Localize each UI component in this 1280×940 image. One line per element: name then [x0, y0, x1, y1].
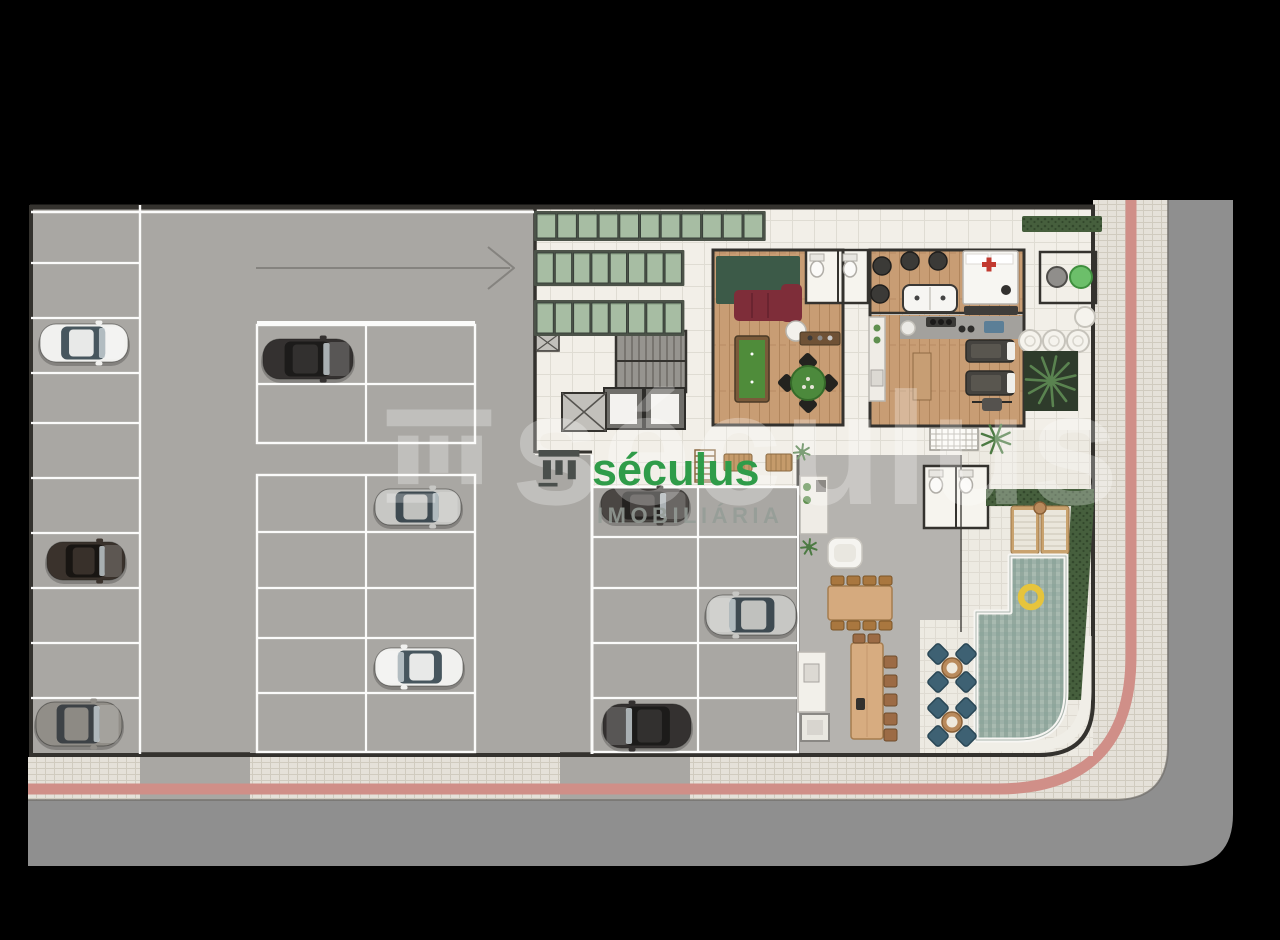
toilet — [960, 477, 973, 493]
elevator-1-cab — [610, 394, 637, 424]
treadmill-console — [1007, 373, 1015, 393]
puck — [915, 296, 920, 301]
counter-item — [808, 336, 813, 341]
floor-plan-image: séculus séculus IMOBILIÁRIA — [0, 0, 1280, 940]
toilet-tank — [959, 470, 973, 477]
dining-chair — [831, 621, 844, 630]
dining-chair — [863, 576, 876, 585]
gourmet-chair — [884, 729, 897, 741]
bistro-table-top — [947, 717, 958, 728]
elevator-2-cab — [651, 394, 679, 424]
site-plan-svg — [0, 0, 1280, 940]
car-right-black — [601, 701, 693, 753]
gourmet-chair — [884, 656, 897, 668]
car-right-charcoal — [599, 486, 691, 527]
kettlebell — [968, 326, 975, 333]
gourmet-chair — [884, 713, 897, 725]
billiard-ball — [751, 353, 754, 356]
puck — [941, 296, 946, 301]
card-table-item — [802, 385, 806, 389]
dining-chair — [847, 576, 860, 585]
locker-row-2 — [534, 250, 684, 286]
dining-chair — [863, 621, 876, 630]
kettlebell — [959, 326, 966, 333]
plant-pot — [803, 496, 811, 504]
sink — [871, 370, 883, 386]
toilet — [930, 477, 943, 493]
bench — [766, 454, 792, 471]
sink — [804, 664, 819, 682]
card-table — [791, 366, 825, 400]
block-a-top — [257, 321, 475, 325]
dumbbell — [946, 319, 952, 325]
hedge-strip — [1022, 216, 1102, 232]
billiards-felt — [739, 340, 765, 398]
yoga-mats — [984, 321, 1004, 333]
dumbbell — [930, 319, 936, 325]
treadmill-deck — [971, 344, 1001, 358]
appliance — [816, 480, 826, 492]
beanbag — [871, 285, 889, 303]
planter — [1075, 307, 1095, 327]
red-cross-pillow — [987, 258, 992, 272]
dining-chair — [879, 576, 892, 585]
toilet — [844, 261, 857, 277]
car-right-silver-suv — [704, 592, 798, 640]
counter-item — [828, 336, 833, 341]
dining-chair — [879, 621, 892, 630]
dining-table — [828, 586, 892, 620]
planter — [1067, 330, 1089, 352]
plant-pot — [874, 337, 881, 344]
gourmet-chair — [884, 694, 897, 706]
locker-row-1 — [534, 211, 766, 241]
card-table-item — [810, 385, 814, 389]
table-item — [856, 698, 865, 710]
trash-bin-gray — [1047, 267, 1067, 287]
gourmet-chair — [884, 675, 897, 687]
beanbag — [873, 257, 891, 275]
car-mid-white — [373, 645, 465, 691]
planter — [1043, 330, 1065, 352]
planter — [1019, 330, 1041, 352]
toilet-tank — [810, 254, 824, 261]
cabinet-inner — [807, 720, 823, 735]
dining-chair — [847, 621, 860, 630]
car-left-mid-espresso — [45, 539, 127, 585]
billiard-ball — [751, 381, 754, 384]
plant-pot — [803, 483, 811, 491]
exercise-ball — [901, 321, 915, 335]
dumbbell — [938, 319, 944, 325]
treadmill-console — [1007, 342, 1015, 360]
toilet-tank — [843, 254, 857, 261]
beanbag — [901, 252, 919, 270]
car-left-top-white — [38, 321, 130, 367]
weight-bench — [982, 398, 1002, 411]
garage-aisle — [535, 450, 592, 756]
car-left-bottom-gray — [34, 699, 124, 751]
car-mid-top-black — [261, 336, 355, 384]
lounger-table — [1034, 502, 1046, 514]
card-table-item — [806, 377, 810, 381]
dining-chair — [831, 576, 844, 585]
gourmet-chair — [868, 634, 880, 643]
bistro-table-top — [947, 663, 958, 674]
island-counter — [913, 353, 931, 400]
lounge-chair-cushion — [834, 544, 856, 562]
sofa-chaise — [781, 284, 802, 322]
treadmill-deck — [971, 375, 1001, 391]
tv-console — [964, 306, 1018, 315]
gourmet-chair — [853, 634, 865, 643]
trash-bin-green — [1070, 266, 1092, 288]
toilet-tank — [929, 470, 943, 477]
locker-row-3 — [534, 300, 684, 336]
ottoman — [1001, 285, 1011, 295]
toilet — [811, 261, 824, 277]
beanbag — [929, 252, 947, 270]
counter-item — [818, 336, 823, 341]
bench — [724, 454, 752, 471]
plant-pot — [874, 325, 881, 332]
car-mid-silver — [373, 486, 463, 530]
